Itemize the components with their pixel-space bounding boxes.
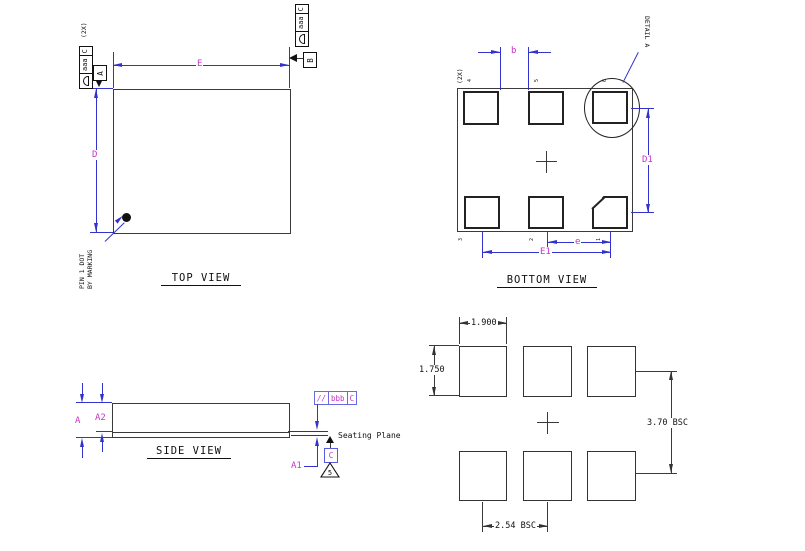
fcf-leader-line [317, 404, 318, 422]
qty-note-bottom-view: (2X) [456, 58, 467, 84]
arrowhead-icon [80, 438, 84, 447]
pin1-note-line1: PIN 1 DOT [78, 250, 86, 289]
land-pad [459, 346, 507, 397]
arrowhead-icon [94, 89, 98, 98]
datum-b-letter: B [305, 58, 314, 63]
dim-colpitch-extension [547, 502, 548, 532]
profile-of-surface-icon [80, 74, 92, 88]
arrowhead-icon [100, 433, 104, 442]
datum-b-flag: B [303, 52, 317, 68]
qty-note-top-view: (2X) [80, 14, 91, 38]
fcf-right-datum: C [296, 5, 308, 14]
dim-d1-label: D1 [641, 155, 654, 165]
dim-e-pitch-label: e [574, 237, 581, 247]
fcf-parallelism-tolerance: bbb [328, 392, 347, 404]
fcf-parallelism-datum: C [347, 392, 357, 404]
land-pad [459, 451, 507, 501]
pad-4 [463, 91, 499, 125]
dim-e1-extension [482, 232, 483, 258]
package-drawing-canvas: PIN 1 DOT BY MARKING E D A aaa C (2X) aa… [0, 0, 805, 551]
pad-2 [528, 196, 564, 229]
center-cross-v [546, 151, 547, 173]
arrowhead-icon [539, 524, 548, 528]
arrowhead-icon [432, 387, 436, 396]
detail-a-note: DETAIL A [639, 16, 651, 82]
datum-c-letter: C [329, 451, 334, 460]
arrowhead-icon [483, 524, 492, 528]
dim-a-label: A [74, 416, 81, 426]
bottom-view-title: BOTTOM VIEW [497, 274, 597, 288]
arrowhead-icon [315, 421, 319, 430]
side-view-standoff [112, 432, 290, 438]
arrowhead-icon [602, 240, 611, 244]
arrowhead-icon [646, 109, 650, 118]
fcf-right-vertical: aaa C [290, 3, 304, 47]
dim-colpitch-extension [482, 502, 483, 532]
land-cross-h [537, 422, 559, 423]
parallelism-icon: // [315, 392, 328, 404]
top-view-title: TOP VIEW [161, 272, 241, 286]
pin-number-4: 4 [467, 74, 473, 82]
body-bottom-extension [288, 431, 328, 432]
note-flag-5: 5 [320, 462, 340, 478]
land-pad [587, 451, 636, 501]
arrowhead-icon [315, 437, 319, 446]
land-pad [523, 346, 572, 397]
seating-plane-line [291, 435, 328, 436]
dim-d-extension-bottom [90, 232, 113, 233]
datum-a-letter: A [95, 71, 104, 76]
arrowhead-icon [491, 50, 500, 54]
dim-b-label: b [510, 46, 517, 56]
dim-a1-leader [304, 466, 318, 467]
pin-number-2: 2 [529, 233, 535, 241]
arrowhead-icon [669, 464, 673, 473]
pin1-note: PIN 1 DOT BY MARKING [78, 237, 98, 289]
arrowhead-icon [280, 63, 289, 67]
land-cross-v [547, 412, 548, 434]
land-pad [523, 451, 572, 501]
arrowhead-icon [100, 394, 104, 403]
pad-3 [464, 196, 500, 229]
pin1-note-line2: BY MARKING [86, 250, 94, 289]
arrowhead-icon [529, 50, 538, 54]
datum-b-triangle-icon [289, 54, 297, 62]
pin-number-3: 3 [458, 233, 464, 241]
dim-e-extension-left [113, 52, 114, 88]
dim-a2-label: A2 [94, 413, 107, 423]
dim-padh-label: 1.750 [418, 365, 446, 375]
seating-plane-label: Seating Plane [337, 431, 402, 441]
arrowhead-icon [94, 223, 98, 232]
datum-a-flag: A [93, 65, 107, 81]
detail-a-leader-line [622, 52, 638, 83]
dim-e1-label: E1 [539, 247, 552, 257]
dim-rowpitch-label: 3.70 BSC [646, 418, 689, 428]
arrowhead-icon [432, 346, 436, 355]
top-view-outline [113, 89, 291, 234]
pin-number-5: 5 [534, 74, 540, 82]
arrowhead-icon [483, 250, 492, 254]
arrowhead-icon [548, 240, 557, 244]
arrowhead-icon [113, 63, 122, 67]
arrowhead-icon [459, 321, 468, 325]
fcf-right-tolerance: aaa [296, 14, 308, 32]
profile-of-surface-icon [296, 32, 308, 46]
dim-d-label: D [91, 150, 98, 160]
dim-shared-extension [610, 232, 611, 258]
arrowhead-icon [602, 250, 611, 254]
pad-5 [528, 91, 564, 125]
pin-number-1: 1 [596, 233, 602, 241]
side-view-title: SIDE VIEW [147, 445, 231, 459]
dim-b-extension-left [500, 47, 501, 90]
arrowhead-icon [80, 394, 84, 403]
dim-d1-extension-top [631, 108, 654, 109]
dim-rowpitch-extension [636, 473, 677, 474]
arrowhead-icon [646, 204, 650, 213]
arrowhead-icon [498, 321, 507, 325]
dim-padw-label: 1.900 [470, 318, 498, 328]
note-flag-number: 5 [320, 469, 340, 477]
seating-plane-marker-icon [326, 436, 334, 443]
fcf-parallelism: // bbb C [314, 391, 357, 405]
side-view-body [112, 403, 290, 433]
dim-e-label: E [196, 59, 203, 69]
dim-a1-arrow-line [317, 443, 318, 467]
dim-colpitch-label: 2.54 BSC [494, 521, 537, 531]
dim-a1-label: A1 [290, 461, 303, 471]
fcf-left-tolerance: aaa [80, 56, 92, 74]
fcf-left-vertical: aaa C [74, 37, 88, 89]
datum-c-flag: C [324, 448, 338, 463]
dim-d1-extension-bottom [631, 212, 654, 213]
dim-d-line [96, 89, 97, 232]
arrowhead-icon [669, 371, 673, 380]
land-pad [587, 346, 636, 397]
dim-a2-extension-bottom [96, 431, 112, 432]
fcf-left-datum: C [80, 47, 92, 56]
pin-number-6: 6 [602, 74, 608, 82]
